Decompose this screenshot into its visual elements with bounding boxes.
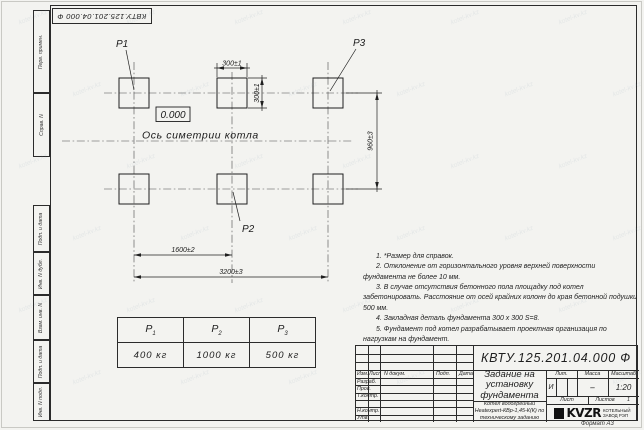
tb-line bbox=[356, 362, 473, 363]
load-value-p3: 500 кг bbox=[250, 343, 316, 368]
dim-full-span: 3200±3 bbox=[219, 269, 242, 276]
tb-sheets-value: 1 bbox=[620, 396, 637, 404]
dim-half-span: 1600±2 bbox=[171, 247, 194, 254]
tb-col-ndokum: N докум. bbox=[383, 370, 433, 378]
tb-mass-value: – bbox=[577, 378, 608, 396]
tb-col-data: Дата bbox=[458, 370, 473, 378]
tb-row-prov: Пров. bbox=[356, 385, 380, 392]
kvzr-logo: KVZR КОТЕЛЬНЫЙ ЗАВОД РЭП bbox=[554, 406, 630, 420]
tb-line bbox=[456, 346, 457, 422]
elevation-value: 0.000 bbox=[160, 110, 185, 121]
tb-row-nkontr: Н.контр. bbox=[356, 407, 380, 414]
dim-row-spacing: 960±3 bbox=[368, 131, 375, 151]
tb-mass-label: Масса bbox=[577, 370, 608, 378]
tb-line bbox=[356, 400, 473, 401]
tb-designation: КВТУ.125.201.04.000 Ф bbox=[473, 346, 639, 370]
tb-col-podp: Подп. bbox=[435, 370, 456, 378]
label-p1: P1 bbox=[116, 39, 128, 50]
kvzr-logo-word: KVZR bbox=[566, 406, 601, 420]
tb-logo-zone: KVZR КОТЕЛЬНЫЙ ЗАВОД РЭП bbox=[546, 404, 639, 422]
note-3: 3. В случае отсутствия бетонного пола пл… bbox=[363, 283, 639, 314]
format-label: Формат А3 bbox=[581, 421, 614, 427]
tb-col-list: Лист bbox=[368, 370, 380, 378]
center-lines bbox=[62, 62, 358, 283]
tb-line bbox=[567, 378, 568, 396]
tb-scale-label: Масштаб bbox=[608, 370, 639, 378]
load-table-header-row: P1 P2 P3 bbox=[118, 318, 316, 343]
dim-pad-width: 300±1 bbox=[222, 61, 242, 68]
tb-lit-label: Лит. bbox=[546, 370, 577, 378]
label-p3: P3 bbox=[353, 38, 366, 49]
load-table: P1 P2 P3 400 кг 1000 кг 500 кг bbox=[117, 317, 316, 368]
load-header-p1: P1 bbox=[118, 318, 184, 343]
tb-doc-title: Задание на установку фундамента bbox=[473, 370, 546, 401]
tb-line bbox=[380, 346, 381, 422]
kvzr-logo-caption: КОТЕЛЬНЫЙ ЗАВОД РЭП bbox=[603, 408, 631, 418]
technical-notes: 1. *Размер для справок. 2. Отклонение от… bbox=[363, 252, 639, 345]
label-p2: P2 bbox=[242, 224, 255, 235]
kvzr-logo-icon bbox=[554, 408, 564, 419]
tb-lit-value: И bbox=[546, 378, 556, 396]
dim-pad-height: 300±1 bbox=[254, 83, 261, 103]
tb-line bbox=[433, 346, 434, 422]
title-block: Изм. Лист N докум. Подп. Дата Разраб. Пр… bbox=[355, 345, 638, 421]
tb-sheets-label: Листов bbox=[590, 396, 620, 404]
tb-line bbox=[588, 396, 589, 404]
tb-row-tkontr: Т.контр. bbox=[356, 393, 380, 400]
note-2: 2. Отклонение от горизонтального уровня … bbox=[363, 262, 639, 283]
tb-sheet-label: Лист bbox=[546, 396, 588, 404]
tb-row-razrab: Разраб. bbox=[356, 378, 380, 385]
load-header-p2: P2 bbox=[184, 318, 250, 343]
load-header-p3: P3 bbox=[250, 318, 316, 343]
load-table-value-row: 400 кг 1000 кг 500 кг bbox=[118, 343, 316, 368]
load-value-p1: 400 кг bbox=[118, 343, 184, 368]
tb-line bbox=[356, 354, 473, 355]
tb-scale-value: 1:20 bbox=[608, 378, 639, 396]
drawing-sheet: Перв. примен. Справ. N Подп. и дата Инв.… bbox=[0, 0, 644, 430]
symmetry-axis-label: Ось симетрии котла bbox=[142, 130, 259, 142]
tb-line bbox=[556, 378, 557, 396]
load-value-p2: 1000 кг bbox=[184, 343, 250, 368]
note-4: 4. Закладная деталь фундамента 300 х 300… bbox=[363, 314, 639, 324]
tb-row-utv: Утв. bbox=[356, 415, 380, 422]
note-5: 5. Фундамент под котел разрабатывает про… bbox=[363, 325, 639, 346]
tb-col-izm: Изм. bbox=[356, 370, 368, 378]
tb-product: Котел водогрейный Heatexpert-КВр-1,45-К(… bbox=[473, 401, 546, 422]
note-1: 1. *Размер для справок. bbox=[363, 252, 639, 262]
